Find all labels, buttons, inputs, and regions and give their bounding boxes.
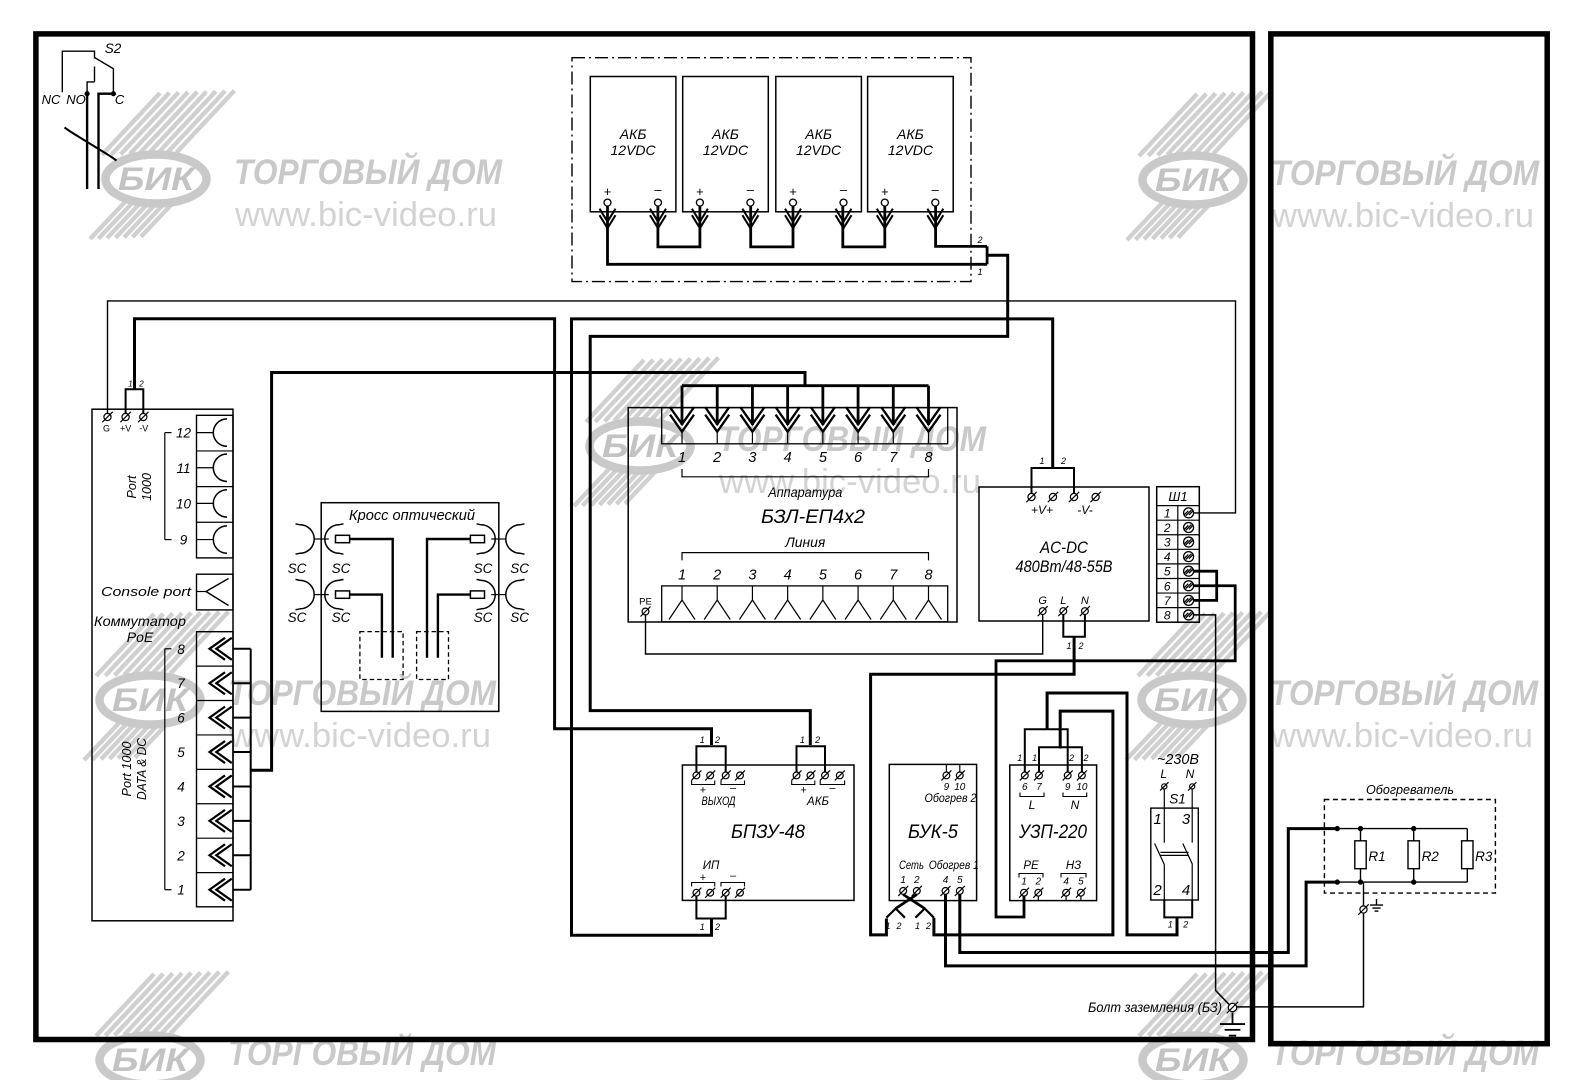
svg-text:SC: SC bbox=[288, 561, 307, 576]
svg-text:ТОРГОВЫЙ ДОМ: ТОРГОВЫЙ ДОМ bbox=[228, 672, 497, 713]
svg-text:4: 4 bbox=[177, 779, 185, 794]
svg-text:1: 1 bbox=[678, 450, 686, 466]
svg-text:7: 7 bbox=[1036, 782, 1042, 793]
svg-text:+V+: +V+ bbox=[1031, 503, 1053, 517]
svg-text:2: 2 bbox=[712, 568, 721, 584]
svg-text:+: + bbox=[700, 785, 706, 797]
svg-text:NC: NC bbox=[42, 92, 61, 107]
svg-text:SC: SC bbox=[288, 610, 307, 625]
svg-text:2: 2 bbox=[714, 922, 720, 932]
svg-text:12VDC: 12VDC bbox=[888, 142, 934, 158]
svg-text:5: 5 bbox=[819, 568, 828, 584]
svg-text:Ш1: Ш1 bbox=[1168, 489, 1187, 504]
svg-text:SC: SC bbox=[510, 610, 529, 625]
svg-text:7: 7 bbox=[177, 676, 185, 691]
svg-text:2: 2 bbox=[1163, 521, 1171, 535]
svg-text:ТОРГОВЫЙ ДОМ: ТОРГОВЫЙ ДОМ bbox=[1271, 152, 1540, 193]
svg-text:SC: SC bbox=[474, 561, 493, 576]
svg-text:Console port: Console port bbox=[101, 585, 192, 599]
svg-text:S2: S2 bbox=[105, 41, 122, 56]
svg-text:1: 1 bbox=[800, 735, 805, 745]
svg-text:12VDC: 12VDC bbox=[796, 142, 842, 158]
svg-text:+: + bbox=[800, 785, 806, 797]
svg-text:ТОРГОВЫЙ ДОМ: ТОРГОВЫЙ ДОМ bbox=[1271, 1032, 1540, 1073]
svg-text:N: N bbox=[1071, 798, 1080, 812]
svg-text:ТОРГОВЫЙ ДОМ: ТОРГОВЫЙ ДОМ bbox=[234, 151, 503, 192]
svg-text:АКБ: АКБ bbox=[806, 796, 829, 808]
svg-text:10: 10 bbox=[954, 782, 966, 793]
svg-text:1: 1 bbox=[700, 735, 705, 745]
svg-text:Болт заземления (БЗ): Болт заземления (БЗ) bbox=[1088, 999, 1222, 1015]
svg-text:БИК: БИК bbox=[112, 1042, 191, 1078]
svg-text:9: 9 bbox=[180, 533, 188, 548]
svg-text:+: + bbox=[881, 184, 889, 199]
svg-text:S1: S1 bbox=[1169, 792, 1186, 807]
svg-text:2: 2 bbox=[814, 735, 820, 745]
svg-text:4: 4 bbox=[784, 450, 792, 466]
svg-text:УЗП-220: УЗП-220 bbox=[1018, 821, 1087, 843]
svg-text:1: 1 bbox=[977, 267, 982, 277]
svg-text:–: – bbox=[932, 182, 940, 197]
svg-text:2: 2 bbox=[976, 235, 982, 245]
svg-text:PE: PE bbox=[1023, 860, 1039, 872]
svg-text:3: 3 bbox=[1182, 811, 1191, 828]
svg-text:2: 2 bbox=[1035, 877, 1042, 888]
svg-text:Аппаратура: Аппаратура bbox=[767, 484, 842, 500]
svg-text:5: 5 bbox=[1078, 877, 1084, 888]
svg-text:8: 8 bbox=[924, 568, 932, 584]
svg-text:2: 2 bbox=[925, 921, 931, 931]
svg-text:1: 1 bbox=[1164, 506, 1171, 520]
svg-text:ВЫХОД: ВЫХОД bbox=[702, 796, 736, 808]
svg-text:2: 2 bbox=[1082, 753, 1088, 763]
svg-text:C: C bbox=[115, 92, 125, 107]
svg-text:1: 1 bbox=[128, 380, 132, 389]
svg-text:6: 6 bbox=[1164, 579, 1171, 593]
svg-text:1: 1 bbox=[885, 921, 890, 931]
svg-text:Линия: Линия bbox=[784, 534, 826, 550]
svg-text:3: 3 bbox=[177, 814, 185, 829]
svg-text:Port: Port bbox=[125, 475, 139, 498]
svg-text:–: – bbox=[840, 182, 848, 197]
svg-text:www.bic-video.ru: www.bic-video.ru bbox=[1270, 717, 1533, 755]
svg-text:9: 9 bbox=[944, 782, 950, 793]
svg-text:1: 1 bbox=[1032, 753, 1037, 763]
svg-text:5: 5 bbox=[177, 745, 185, 760]
svg-text:2: 2 bbox=[138, 380, 144, 389]
svg-text:Сеть: Сеть bbox=[899, 860, 924, 872]
svg-text:Кросс оптический: Кросс оптический bbox=[349, 508, 475, 524]
svg-text:12VDC: 12VDC bbox=[611, 142, 657, 158]
svg-text:480Вт/48-55В: 480Вт/48-55В bbox=[1016, 557, 1113, 576]
svg-text:БПЗУ-48: БПЗУ-48 bbox=[731, 821, 805, 843]
svg-text:3: 3 bbox=[1164, 536, 1171, 550]
svg-text:АКБ: АКБ bbox=[619, 126, 647, 142]
svg-text:7: 7 bbox=[889, 568, 898, 584]
svg-text:3: 3 bbox=[748, 568, 756, 584]
svg-text:2: 2 bbox=[1182, 920, 1188, 930]
svg-text:R1: R1 bbox=[1368, 849, 1385, 864]
svg-text:~230В: ~230В bbox=[1157, 752, 1199, 768]
svg-text:1: 1 bbox=[177, 883, 185, 898]
svg-text:PoE: PoE bbox=[127, 629, 154, 645]
svg-text:6: 6 bbox=[1022, 782, 1028, 793]
svg-text:8: 8 bbox=[1164, 608, 1171, 622]
svg-text:PE: PE bbox=[639, 597, 652, 608]
svg-text:1: 1 bbox=[700, 922, 705, 932]
svg-text:AC-DC: AC-DC bbox=[1039, 538, 1089, 557]
svg-text:7: 7 bbox=[889, 450, 898, 466]
svg-text:БЗЛ-ЕП4х2: БЗЛ-ЕП4х2 bbox=[761, 506, 865, 528]
svg-text:АКБ: АКБ bbox=[711, 126, 739, 142]
svg-text:6: 6 bbox=[854, 450, 863, 466]
svg-text:Port 1000: Port 1000 bbox=[120, 741, 134, 796]
svg-text:R2: R2 bbox=[1422, 849, 1440, 864]
svg-text:N: N bbox=[1186, 767, 1195, 781]
svg-text:БИК: БИК bbox=[1155, 162, 1234, 198]
svg-text:5: 5 bbox=[1164, 565, 1171, 579]
svg-text:SC: SC bbox=[332, 610, 351, 625]
svg-text:N: N bbox=[1081, 595, 1089, 607]
svg-text:2: 2 bbox=[1152, 882, 1162, 899]
svg-text:4: 4 bbox=[1164, 550, 1171, 564]
svg-text:G: G bbox=[103, 424, 110, 434]
svg-text:БИК: БИК bbox=[118, 161, 197, 197]
svg-text:11: 11 bbox=[176, 461, 190, 476]
svg-text:2: 2 bbox=[712, 450, 721, 466]
svg-text:ИП: ИП bbox=[703, 860, 720, 872]
svg-text:1: 1 bbox=[1168, 920, 1173, 930]
svg-text:–: – bbox=[829, 783, 836, 795]
svg-text:2: 2 bbox=[913, 875, 920, 886]
svg-text:2: 2 bbox=[176, 848, 185, 863]
svg-text:2: 2 bbox=[1060, 456, 1066, 466]
svg-text:-V-: -V- bbox=[1077, 503, 1093, 517]
svg-text:SC: SC bbox=[474, 610, 493, 625]
svg-text:1000: 1000 bbox=[140, 473, 154, 501]
svg-text:БИК: БИК bbox=[1154, 682, 1233, 718]
svg-text:-V: -V bbox=[139, 424, 148, 434]
svg-text:10: 10 bbox=[176, 496, 192, 511]
svg-text:–: – bbox=[654, 182, 662, 197]
svg-text:1: 1 bbox=[678, 568, 686, 584]
svg-text:2: 2 bbox=[895, 921, 901, 931]
svg-text:8: 8 bbox=[924, 450, 932, 466]
svg-text:www.bic-video.ru: www.bic-video.ru bbox=[1271, 197, 1534, 235]
svg-text:5: 5 bbox=[819, 450, 828, 466]
svg-text:NO: NO bbox=[66, 92, 86, 107]
svg-text:4: 4 bbox=[943, 875, 949, 886]
svg-text:2: 2 bbox=[714, 735, 720, 745]
svg-text:R3: R3 bbox=[1475, 849, 1493, 864]
svg-text:12VDC: 12VDC bbox=[703, 142, 749, 158]
svg-text:1: 1 bbox=[1039, 456, 1044, 466]
svg-text:DATA & DC: DATA & DC bbox=[135, 737, 149, 800]
svg-text:6: 6 bbox=[177, 711, 185, 726]
svg-text:L: L bbox=[1029, 798, 1036, 812]
svg-text:8: 8 bbox=[177, 642, 185, 657]
svg-text:БУК-5: БУК-5 bbox=[908, 821, 958, 843]
svg-text:4: 4 bbox=[784, 568, 792, 584]
svg-text:4: 4 bbox=[1063, 877, 1069, 888]
svg-text:1: 1 bbox=[1021, 877, 1027, 888]
svg-text:www.bic-video.ru: www.bic-video.ru bbox=[228, 717, 491, 755]
svg-text:12: 12 bbox=[176, 426, 192, 441]
svg-text:www.bic-video.ru: www.bic-video.ru bbox=[718, 463, 981, 501]
svg-text:9: 9 bbox=[1065, 782, 1071, 793]
svg-text:–: – bbox=[730, 870, 737, 882]
svg-text:БИК: БИК bbox=[602, 428, 681, 464]
svg-text:+: + bbox=[789, 184, 797, 199]
svg-text:+V: +V bbox=[120, 424, 131, 434]
svg-text:Обогрев 2: Обогрев 2 bbox=[925, 793, 978, 805]
svg-text:1: 1 bbox=[1153, 811, 1161, 828]
svg-text:www.bic-video.ru: www.bic-video.ru bbox=[234, 196, 497, 234]
svg-text:–: – bbox=[730, 783, 737, 795]
svg-text:2: 2 bbox=[1068, 753, 1074, 763]
svg-text:+: + bbox=[604, 184, 612, 199]
svg-text:6: 6 bbox=[854, 568, 863, 584]
svg-text:НЗ: НЗ bbox=[1066, 860, 1081, 872]
svg-text:1: 1 bbox=[915, 921, 920, 931]
svg-text:10: 10 bbox=[1076, 782, 1088, 793]
svg-text:Обогрев 1: Обогрев 1 bbox=[929, 860, 979, 872]
svg-text:L: L bbox=[1160, 767, 1167, 781]
svg-text:+: + bbox=[696, 184, 704, 199]
svg-text:L: L bbox=[1060, 595, 1066, 607]
svg-text:G: G bbox=[1038, 595, 1047, 607]
svg-text:Коммутатор: Коммутатор bbox=[94, 613, 186, 629]
svg-text:БИК: БИК bbox=[1155, 1042, 1234, 1078]
svg-text:3: 3 bbox=[748, 450, 756, 466]
svg-text:5: 5 bbox=[957, 875, 963, 886]
svg-text:Обогреватель: Обогреватель bbox=[1366, 782, 1454, 797]
svg-text:SC: SC bbox=[332, 561, 351, 576]
svg-text:1: 1 bbox=[900, 875, 906, 886]
svg-text:АКБ: АКБ bbox=[804, 126, 832, 142]
svg-text:АКБ: АКБ bbox=[896, 126, 924, 142]
svg-text:2: 2 bbox=[1077, 641, 1083, 651]
svg-text:1: 1 bbox=[1017, 753, 1022, 763]
svg-text:ТОРГОВЫЙ ДОМ: ТОРГОВЫЙ ДОМ bbox=[1270, 672, 1539, 713]
svg-text:–: – bbox=[747, 182, 755, 197]
svg-text:1: 1 bbox=[1066, 641, 1071, 651]
svg-text:4: 4 bbox=[1182, 882, 1190, 899]
svg-text:SC: SC bbox=[510, 561, 529, 576]
